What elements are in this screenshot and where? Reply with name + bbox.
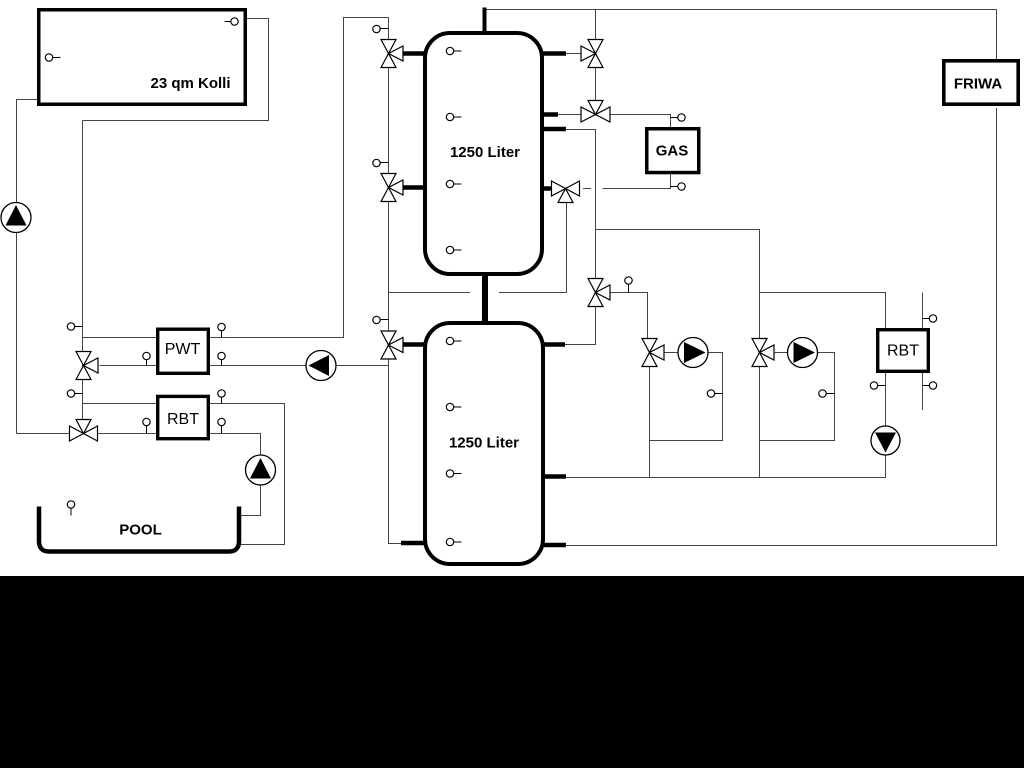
svg-text:GAS: GAS [656, 143, 689, 160]
svg-text:RBT: RBT [887, 343, 919, 360]
svg-text:FRIWA: FRIWA [954, 76, 1002, 93]
svg-text:1250 Liter: 1250 Liter [449, 435, 519, 452]
svg-text:23 qm Kolli: 23 qm Kolli [150, 75, 230, 92]
svg-text:1250 Liter: 1250 Liter [450, 144, 520, 161]
svg-text:PWT: PWT [165, 341, 201, 358]
svg-text:POOL: POOL [119, 522, 162, 539]
svg-text:RBT: RBT [167, 411, 199, 428]
